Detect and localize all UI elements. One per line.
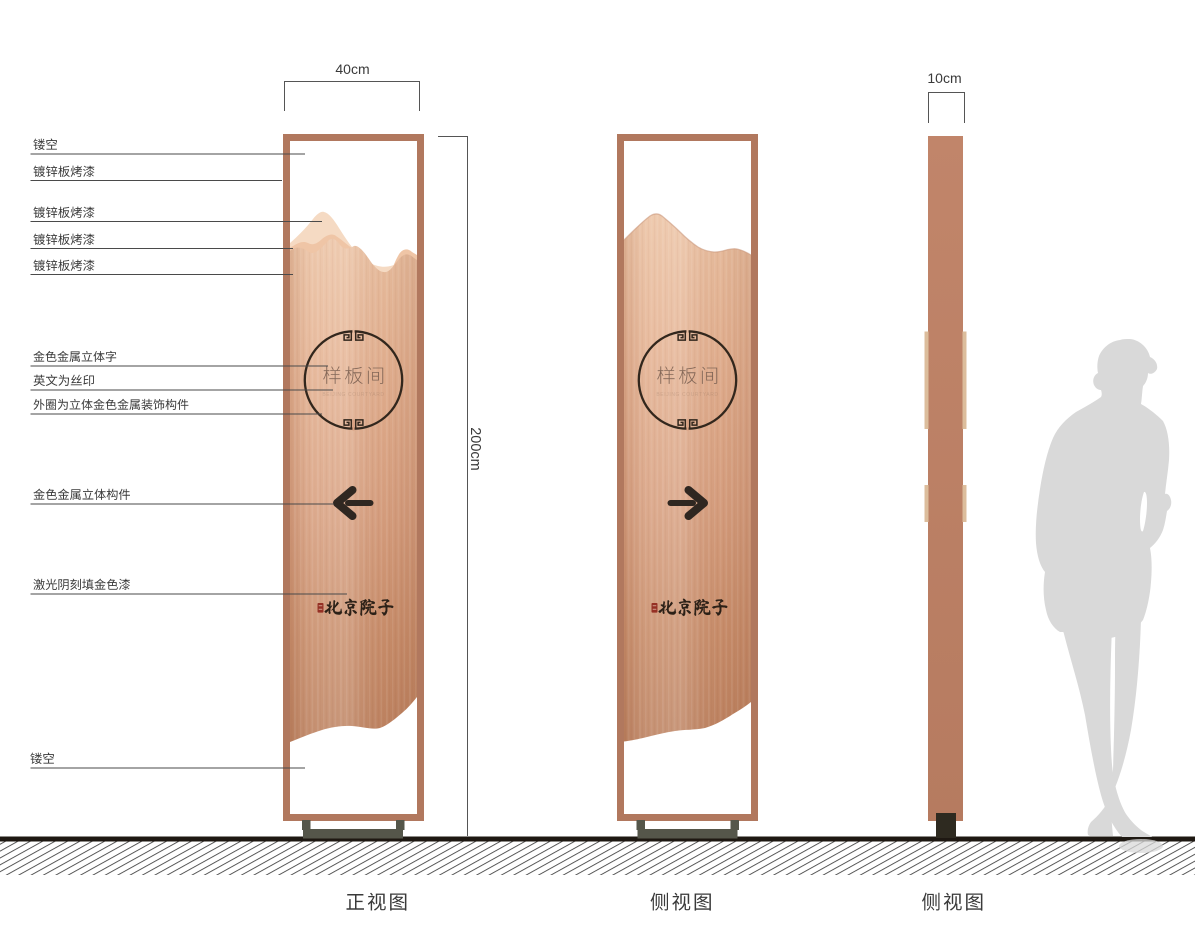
- svg-text:BEIJING COURTYARD: BEIJING COURTYARD: [322, 392, 384, 398]
- svg-text:10cm: 10cm: [927, 70, 961, 86]
- svg-text:200cm: 200cm: [467, 427, 483, 471]
- svg-text:40cm: 40cm: [335, 61, 369, 77]
- svg-text:BEIJING COURTYARD: BEIJING COURTYARD: [656, 392, 718, 398]
